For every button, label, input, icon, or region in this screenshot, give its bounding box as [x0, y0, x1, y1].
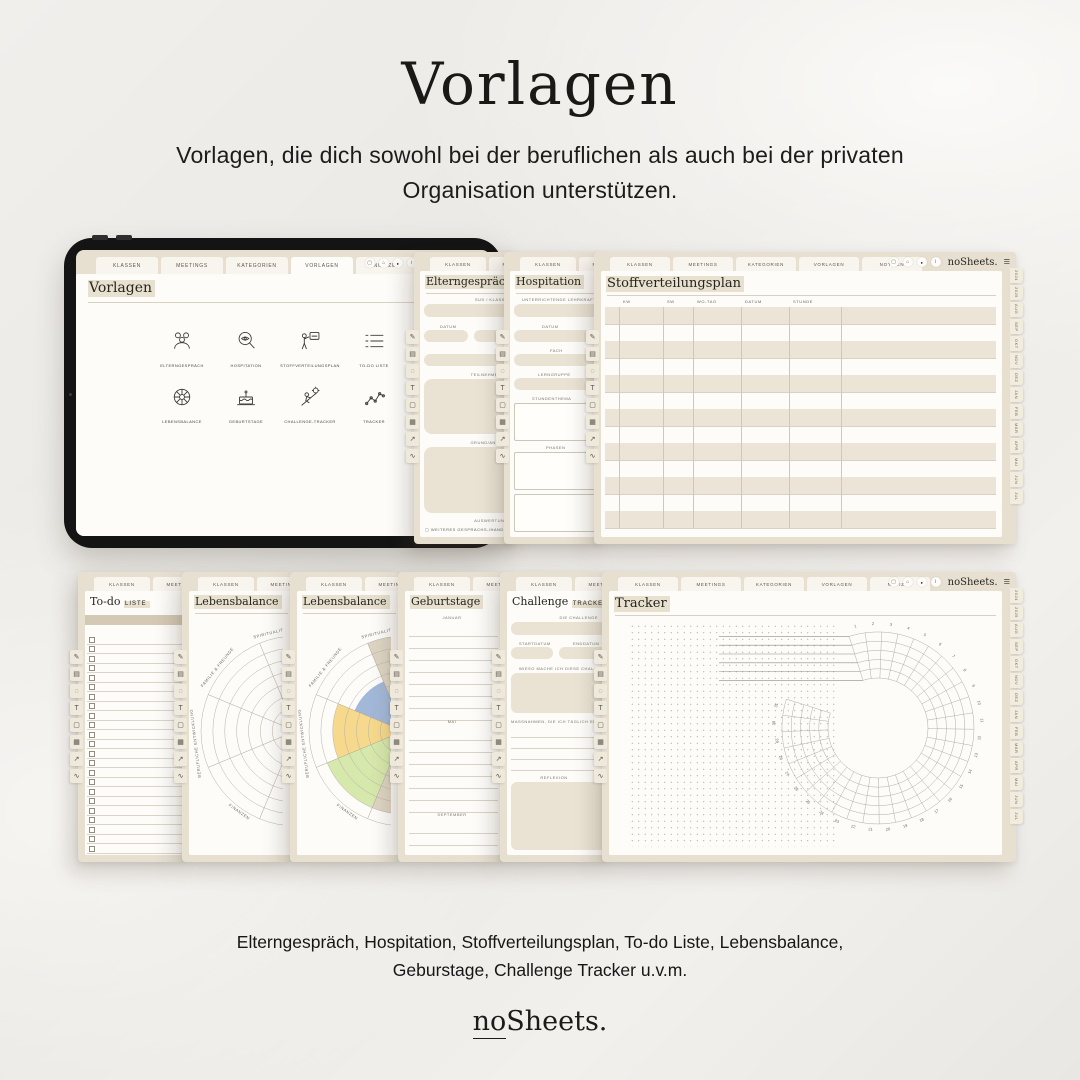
side-tab-aug[interactable]: AUG	[1010, 302, 1023, 317]
arrow-icon[interactable]: ↗	[70, 752, 83, 766]
presenter-icon	[297, 328, 323, 354]
template-grid: ELTERNGESPRÄCHHOSPITATIONSTOFFVERTEILUNG…	[150, 328, 406, 424]
side-tab-jun[interactable]: JUN	[1010, 472, 1023, 487]
field-label: DATUM	[440, 324, 456, 329]
tab-meetings[interactable]: MEETINGS	[161, 257, 223, 274]
day-number: 10	[976, 700, 982, 706]
todo-checkbox[interactable]	[89, 827, 95, 833]
logo-no: no	[473, 1006, 507, 1039]
lehrkraft-input[interactable]	[514, 304, 604, 317]
todo-row	[87, 721, 186, 731]
tab-kategorien[interactable]: KATEGORIEN	[736, 257, 796, 271]
todo-row	[87, 816, 186, 826]
side-tab-2024[interactable]: 2024	[1010, 268, 1023, 283]
field-label: ENDDATUM	[573, 641, 599, 646]
side-tab-mär[interactable]: MÄR	[1010, 741, 1023, 756]
template-tile-lebensbalance[interactable]: LEBENSBALANCE	[152, 384, 212, 424]
life-balance-wheel-chart: SPIRITUALITÄTFAMILIE & FREUNDEBERUFLICHE…	[189, 613, 283, 853]
volume-button	[92, 235, 108, 240]
todo-row	[87, 778, 186, 788]
column-divider	[693, 307, 694, 528]
birthday-lines	[409, 729, 498, 813]
eraser-icon[interactable]: ◌	[174, 684, 187, 698]
info-icon[interactable]: i	[931, 257, 941, 267]
pen-icon[interactable]: ✎	[496, 330, 509, 344]
image-icon[interactable]: ▦	[406, 415, 419, 429]
tab-bar: KLASSENMEETINGSKATEGORIENVORLAGENNOTIZEN	[500, 572, 606, 591]
field-label: PHASEN	[546, 445, 565, 450]
wordmark: noSheets.	[948, 577, 998, 588]
template-tile-hospitation[interactable]: HOSPITATION	[216, 328, 276, 368]
tab-bar: KLASSENMEETINGSKATEGORIENVORLAGENNOTIZEN	[398, 572, 502, 591]
image-icon[interactable]: ▦	[586, 415, 599, 429]
window-icon[interactable]: ▢	[889, 257, 899, 267]
day-number: 1	[854, 623, 858, 629]
column-header: KW	[623, 299, 631, 304]
info-icon[interactable]: i	[931, 577, 941, 587]
eye-magnifier-icon	[233, 328, 259, 354]
shape-icon[interactable]: ▢	[496, 398, 509, 412]
todo-row	[87, 692, 186, 702]
template-label: LEBENSBALANCE	[152, 419, 212, 424]
tab-klassen[interactable]: KLASSEN	[520, 257, 576, 271]
todo-row	[87, 749, 186, 759]
month-label: JANUAR	[405, 615, 499, 620]
chart-icon[interactable]: ∿	[406, 449, 419, 463]
todo-row	[87, 740, 186, 750]
tab-kategorien[interactable]: KATEGORIEN	[226, 257, 288, 274]
tab-meetings[interactable]: MEETINGS	[365, 577, 398, 591]
todo-row	[87, 635, 186, 645]
tab-vorlagen[interactable]: VORLAGEN	[807, 577, 867, 591]
tab-meetings[interactable]: MEETINGS	[473, 577, 502, 591]
text-icon[interactable]: T	[390, 701, 403, 715]
lebensbalance-sheet: Lebensbalance SPIRITUALITÄTFAMILIE & FRE…	[297, 591, 402, 855]
arrow-icon[interactable]: ↗	[586, 432, 599, 446]
shape-icon[interactable]: ▢	[174, 718, 187, 732]
text-icon[interactable]: T	[492, 701, 505, 715]
column-divider	[741, 307, 742, 528]
chart-icon[interactable]: ∿	[70, 769, 83, 783]
day-number: 25	[805, 798, 812, 805]
todo-row	[87, 730, 186, 740]
birthday-lines	[409, 625, 498, 721]
field-label: FACH	[550, 348, 563, 353]
startdatum-input[interactable]	[511, 647, 553, 659]
side-tab-2024[interactable]: 2024	[1010, 588, 1023, 603]
measure-lines	[511, 727, 604, 771]
side-tab-nov[interactable]: NOV	[1010, 353, 1023, 368]
trend-icon	[361, 384, 387, 410]
column-header: STUNDE	[793, 299, 813, 304]
chart-icon[interactable]: ∿	[282, 769, 295, 783]
tab-vorlagen[interactable]: VORLAGEN	[799, 257, 859, 271]
template-page-geburtstage[interactable]: KLASSENMEETINGSKATEGORIENVORLAGENNOTIZEN…	[398, 572, 502, 862]
side-tab-mär[interactable]: MÄR	[1010, 421, 1023, 436]
arrow-icon[interactable]: ↗	[174, 752, 187, 766]
text-icon[interactable]: T	[406, 381, 419, 395]
page-heading: Lebensbalance	[194, 595, 282, 608]
tab-klassen[interactable]: KLASSEN	[618, 577, 678, 591]
checkbox-icon[interactable]: ▢	[425, 527, 429, 532]
tab-klassen[interactable]: KLASSEN	[94, 577, 150, 591]
tab-klassen[interactable]: KLASSEN	[610, 257, 670, 271]
side-tab-jun[interactable]: JUN	[1010, 792, 1023, 807]
tab-meetings[interactable]: MEETINGS	[153, 577, 184, 591]
chart-icon[interactable]: ∿	[586, 449, 599, 463]
column-header: SW	[667, 299, 675, 304]
field-label: REFLEXION	[507, 775, 601, 780]
pen-icon[interactable]: ✎	[492, 650, 505, 664]
template-tile-stoffverteilungsplan[interactable]: STOFFVERTEILUNGSPLAN	[280, 328, 340, 368]
eraser-icon[interactable]: ◌	[70, 684, 83, 698]
shape-icon[interactable]: ▢	[586, 398, 599, 412]
todo-checkbox[interactable]	[89, 817, 95, 823]
pen-icon[interactable]: ✎	[282, 650, 295, 664]
template-label: HOSPITATION	[216, 363, 276, 368]
column-header: WO-TAG	[697, 299, 717, 304]
field-label: LERNGRUPPE	[538, 372, 571, 377]
wheel-category-label: FINANZEN	[228, 803, 251, 821]
home-icon[interactable]: ⌂	[903, 257, 913, 267]
shape-icon[interactable]: ▢	[390, 718, 403, 732]
tool-rail: ✎▤◌T▢▦↗∿	[406, 330, 420, 463]
record-icon[interactable]: ●	[393, 258, 403, 268]
birthday-line	[409, 846, 498, 855]
stoffverteilungsplan-sheet: Stoffverteilungsplan KWSWWO-TAGDATUMSTUN…	[601, 271, 1002, 537]
text-icon[interactable]: T	[594, 701, 607, 715]
template-page-stoffverteilungsplan[interactable]: KLASSENMEETINGSKATEGORIENVORLAGENNOTIZEN…	[594, 252, 1016, 544]
birthday-line	[409, 822, 498, 834]
todo-checkbox[interactable]	[89, 808, 95, 814]
side-tab-mai[interactable]: MAI	[1010, 775, 1023, 790]
shape-icon[interactable]: ▢	[406, 398, 419, 412]
todo-checkbox[interactable]	[89, 656, 95, 662]
caption-line2: Geburstage, Challenge Tracker u.v.m.	[393, 960, 687, 980]
pen-icon[interactable]: ✎	[390, 650, 403, 664]
todo-row	[87, 835, 186, 845]
side-tab-feb[interactable]: FEB	[1010, 404, 1023, 419]
template-label: TRACKER	[344, 419, 404, 424]
template-page-tracker[interactable]: KLASSENMEETINGSKATEGORIENVORLAGENNOTIZEN…	[602, 572, 1016, 862]
measure-line	[511, 727, 604, 738]
day-number: 21	[868, 827, 874, 832]
circular-habit-tracker-chart: 1234567891011121314151617181920212223242…	[609, 611, 1002, 855]
pen-icon[interactable]: ✎	[586, 330, 599, 344]
todo-checkbox[interactable]	[89, 836, 95, 842]
todo-row	[87, 711, 186, 721]
arrow-icon[interactable]: ↗	[594, 752, 607, 766]
month-rail: 20242025AUGSEPOKTNOVDEZJANFEBMÄRAPRMAIJU…	[1010, 268, 1024, 504]
page-heading: Hospitation	[515, 275, 584, 288]
tab-kategorien[interactable]: KATEGORIEN	[744, 577, 804, 591]
month-rail: 20242025AUGSEPOKTNOVDEZJANFEBMÄRAPRMAIJU…	[1010, 588, 1024, 824]
eraser-icon[interactable]: ◌	[406, 364, 419, 378]
tab-meetings[interactable]: MEETINGS	[681, 577, 741, 591]
text-icon[interactable]: T	[282, 701, 295, 715]
side-tab-2025[interactable]: 2025	[1010, 285, 1023, 300]
wordmark: noSheets.	[948, 257, 998, 268]
template-label: TO-DO LISTE	[344, 363, 404, 368]
template-label: ELTERNGESPRÄCH	[152, 363, 212, 368]
tab-klassen[interactable]: KLASSEN	[414, 577, 470, 591]
challenge-icon	[297, 384, 323, 410]
todo-checkbox[interactable]	[89, 713, 95, 719]
image-icon[interactable]: ▦	[594, 735, 607, 749]
template-tile-tracker[interactable]: TRACKER	[344, 384, 404, 424]
measure-line	[511, 749, 604, 760]
highlighter-icon[interactable]: ▤	[496, 347, 509, 361]
birthday-line	[409, 729, 498, 741]
wheel-category-label: BERUFLICHE ENTWICKLUNG	[297, 709, 310, 778]
todo-row	[87, 683, 186, 693]
window-icon[interactable]: ▢	[889, 577, 899, 587]
todo-row	[87, 844, 186, 854]
shape-icon[interactable]: ▢	[282, 718, 295, 732]
tool-rail: ✎▤◌T▢▦↗∿	[594, 650, 608, 783]
todo-checkbox[interactable]	[89, 770, 95, 776]
eraser-icon[interactable]: ◌	[594, 684, 607, 698]
sheet-title: Vorlagen	[88, 280, 155, 296]
template-label: GEBURTSTAGE	[216, 419, 276, 424]
side-tab-dez[interactable]: DEZ	[1010, 370, 1023, 385]
tracker-sheet: Tracker 12345678910111213141516171819202…	[609, 591, 1002, 855]
template-tile-challenge-tracker[interactable]: CHALLENGE-TRACKER	[280, 384, 340, 424]
challenge-input[interactable]	[511, 622, 610, 635]
arrow-icon[interactable]: ↗	[492, 752, 505, 766]
image-icon[interactable]: ▦	[492, 735, 505, 749]
page-heading: Elterngespräch	[425, 275, 515, 288]
todo-checkbox[interactable]	[89, 846, 95, 852]
image-icon[interactable]: ▦	[70, 735, 83, 749]
todo-checkbox[interactable]	[89, 675, 95, 681]
todo-row	[87, 759, 186, 769]
tab-meetings[interactable]: MEETINGS	[673, 257, 733, 271]
home-icon[interactable]: ⌂	[379, 258, 389, 268]
todo-checkbox[interactable]	[89, 779, 95, 785]
page-title: Vorlagen	[0, 50, 1080, 118]
eraser-icon[interactable]: ◌	[492, 684, 505, 698]
image-icon[interactable]: ▦	[282, 735, 295, 749]
image-icon[interactable]: ▦	[174, 735, 187, 749]
tab-bar: KLASSENMEETINGSKATEGORIENVORLAGENNOTIZEN	[78, 572, 184, 591]
todo-checkbox[interactable]	[89, 751, 95, 757]
day-number: 11	[980, 718, 985, 723]
eraser-icon[interactable]: ◌	[282, 684, 295, 698]
side-tab-feb[interactable]: FEB	[1010, 724, 1023, 739]
todo-row	[87, 854, 186, 856]
wheel-category-label: BERUFLICHE ENTWICKLUNG	[189, 709, 202, 778]
highlighter-icon[interactable]: ▤	[174, 667, 187, 681]
todo-row	[87, 768, 186, 778]
highlighter-icon[interactable]: ▤	[594, 667, 607, 681]
side-tab-nov[interactable]: NOV	[1010, 673, 1023, 688]
tool-rail: ✎▤◌T▢▦↗∿	[496, 330, 510, 463]
shape-icon[interactable]: ▢	[70, 718, 83, 732]
menu-icon[interactable]: ≡	[1004, 257, 1010, 267]
subtitle-line2: Organisation unterstützen.	[403, 177, 678, 203]
side-tab-sep[interactable]: SEP	[1010, 639, 1023, 654]
birthday-lines	[409, 822, 498, 855]
todo-checkbox[interactable]	[89, 741, 95, 747]
radio-icon[interactable]: ◯	[425, 536, 430, 537]
page-heading: Lebensbalance	[302, 595, 390, 608]
eraser-icon[interactable]: ◌	[586, 364, 599, 378]
chart-icon[interactable]: ∿	[492, 769, 505, 783]
highlighter-icon[interactable]: ▤	[70, 667, 83, 681]
template-page-challenge-tracker[interactable]: KLASSENMEETINGSKATEGORIENVORLAGENNOTIZEN…	[500, 572, 606, 862]
record-icon[interactable]: ●	[917, 257, 927, 267]
eraser-icon[interactable]: ◌	[390, 684, 403, 698]
shape-icon[interactable]: ▢	[492, 718, 505, 732]
day-number: 26	[793, 785, 800, 792]
text-icon[interactable]: T	[70, 701, 83, 715]
todo-checkbox[interactable]	[89, 665, 95, 671]
pen-icon[interactable]: ✎	[70, 650, 83, 664]
arrow-icon[interactable]: ↗	[390, 752, 403, 766]
text-icon[interactable]: T	[174, 701, 187, 715]
highlighter-icon[interactable]: ▤	[282, 667, 295, 681]
todo-checkbox[interactable]	[89, 722, 95, 728]
side-tab-jan[interactable]: JAN	[1010, 387, 1023, 402]
day-number: 18	[918, 816, 925, 823]
todo-list	[87, 635, 186, 855]
eraser-icon[interactable]: ◌	[496, 364, 509, 378]
birthday-line	[409, 673, 498, 685]
arrow-icon[interactable]: ↗	[406, 432, 419, 446]
template-page-lebensbalance-empty[interactable]: KLASSENMEETINGSKATEGORIENVORLAGENNOTIZEN…	[182, 572, 290, 862]
template-tile-elterngespräch[interactable]: ELTERNGESPRÄCH	[152, 328, 212, 368]
field-label: AUSWERTUNG	[474, 518, 508, 523]
window-icon[interactable]: ▢	[365, 258, 375, 268]
reflexion-box[interactable]	[511, 782, 610, 850]
day-number: 23	[834, 818, 841, 825]
pen-icon[interactable]: ✎	[174, 650, 187, 664]
tool-rail: ✎▤◌T▢▦↗∿	[586, 330, 600, 463]
tab-vorlagen[interactable]: VORLAGEN	[291, 257, 353, 274]
page-heading: Geburtstage	[410, 595, 483, 608]
tab-klassen[interactable]: KLASSEN	[516, 577, 572, 591]
tab-bar: KLASSENMEETINGSKATEGORIENVORLAGENNOTIZEN	[182, 572, 290, 591]
tab-klassen[interactable]: KLASSEN	[430, 257, 486, 271]
birthday-line	[409, 697, 498, 709]
tab-bar: KLASSENMEETINGSKATEGORIENVORLAGENNOTIZEN	[414, 252, 514, 271]
todo-checkbox[interactable]	[89, 646, 95, 652]
side-tab-okt[interactable]: OKT	[1010, 656, 1023, 671]
birthday-line	[409, 741, 498, 753]
todo-checkbox[interactable]	[89, 703, 95, 709]
todo-checkbox[interactable]	[89, 789, 95, 795]
image-icon[interactable]: ▦	[390, 735, 403, 749]
day-number: 3	[889, 622, 893, 627]
birthday-line	[409, 649, 498, 661]
todo-row	[87, 787, 186, 797]
tab-meetings[interactable]: MEETINGS	[257, 577, 290, 591]
caption-line1: Elterngespräch, Hospitation, Stoffvertei…	[237, 932, 843, 952]
tab-klassen[interactable]: KLASSEN	[198, 577, 254, 591]
column-header: DATUM	[745, 299, 762, 304]
tool-rail: ✎▤◌T▢▦↗∿	[390, 650, 404, 783]
side-tab-mai[interactable]: MAI	[1010, 455, 1023, 470]
todo-checkbox[interactable]	[89, 684, 95, 690]
pen-icon[interactable]: ✎	[406, 330, 419, 344]
side-tab-sep[interactable]: SEP	[1010, 319, 1023, 334]
side-tab-jul[interactable]: JUL	[1010, 809, 1023, 824]
day-number: 2	[872, 621, 875, 626]
day-number: 9	[971, 684, 977, 689]
highlighter-icon[interactable]: ▤	[586, 347, 599, 361]
field-label: DATUM	[542, 324, 558, 329]
template-page-lebensbalance-filled[interactable]: KLASSENMEETINGSKATEGORIENVORLAGENNOTIZEN…	[290, 572, 398, 862]
text-icon[interactable]: T	[496, 381, 509, 395]
side-tab-apr[interactable]: APR	[1010, 758, 1023, 773]
template-label: STOFFVERTEILUNGSPLAN	[280, 363, 340, 368]
geburtstage-sheet: Geburtstage JANUAR MAI SEPTEMBER	[405, 591, 506, 855]
side-tab-apr[interactable]: APR	[1010, 438, 1023, 453]
highlighter-icon[interactable]: ▤	[492, 667, 505, 681]
shape-icon[interactable]: ▢	[594, 718, 607, 732]
chart-icon[interactable]: ∿	[594, 769, 607, 783]
people-icon	[169, 328, 195, 354]
todo-checkbox[interactable]	[89, 798, 95, 804]
column-divider	[841, 307, 842, 528]
chart-icon[interactable]: ∿	[496, 449, 509, 463]
day-number: 15	[958, 783, 965, 790]
day-number: 8	[962, 668, 968, 673]
template-list-caption: Elterngespräch, Hospitation, Stoffvertei…	[0, 928, 1080, 984]
side-tab-aug[interactable]: AUG	[1010, 622, 1023, 637]
template-tile-to-do-liste[interactable]: TO-DO LISTE	[344, 328, 404, 368]
image-icon[interactable]: ▦	[496, 415, 509, 429]
todo-checkbox[interactable]	[89, 637, 95, 643]
template-page-todo-liste[interactable]: KLASSENMEETINGSKATEGORIENVORLAGENNOTIZEN…	[78, 572, 184, 862]
column-divider	[663, 307, 664, 528]
tab-klassen[interactable]: KLASSEN	[306, 577, 362, 591]
birthday-line	[409, 765, 498, 777]
side-tab-jan[interactable]: JAN	[1010, 707, 1023, 722]
template-tile-geburtstage[interactable]: GEBURTSTAGE	[216, 384, 276, 424]
tab-klassen[interactable]: KLASSEN	[96, 257, 158, 274]
todo-checkbox[interactable]	[89, 760, 95, 766]
home-icon[interactable]: ⌂	[903, 577, 913, 587]
todo-row	[87, 825, 186, 835]
month-label: SEPTEMBER	[405, 812, 499, 817]
side-tab-jul[interactable]: JUL	[1010, 489, 1023, 504]
text-icon[interactable]: T	[586, 381, 599, 395]
chart-icon[interactable]: ∿	[390, 769, 403, 783]
template-label: CHALLENGE-TRACKER	[280, 419, 340, 424]
birthday-line	[409, 789, 498, 801]
pen-icon[interactable]: ✎	[594, 650, 607, 664]
record-icon[interactable]: ●	[917, 577, 927, 587]
arrow-icon[interactable]: ↗	[496, 432, 509, 446]
side-tab-okt[interactable]: OKT	[1010, 336, 1023, 351]
todo-checkbox[interactable]	[89, 732, 95, 738]
todo-checkbox[interactable]	[89, 694, 95, 700]
highlighter-icon[interactable]: ▤	[390, 667, 403, 681]
page-heading: Challenge TRACKER	[512, 595, 610, 608]
side-tab-dez[interactable]: DEZ	[1010, 690, 1023, 705]
menu-icon[interactable]: ≡	[1004, 577, 1010, 587]
side-tab-2025[interactable]: 2025	[1010, 605, 1023, 620]
datum-input[interactable]	[424, 330, 468, 342]
highlighter-icon[interactable]: ▤	[406, 347, 419, 361]
day-number: 28	[778, 755, 784, 761]
phasen-box[interactable]	[514, 494, 604, 532]
chart-icon[interactable]: ∿	[174, 769, 187, 783]
day-number: 12	[976, 735, 982, 741]
arrow-icon[interactable]: ↗	[282, 752, 295, 766]
